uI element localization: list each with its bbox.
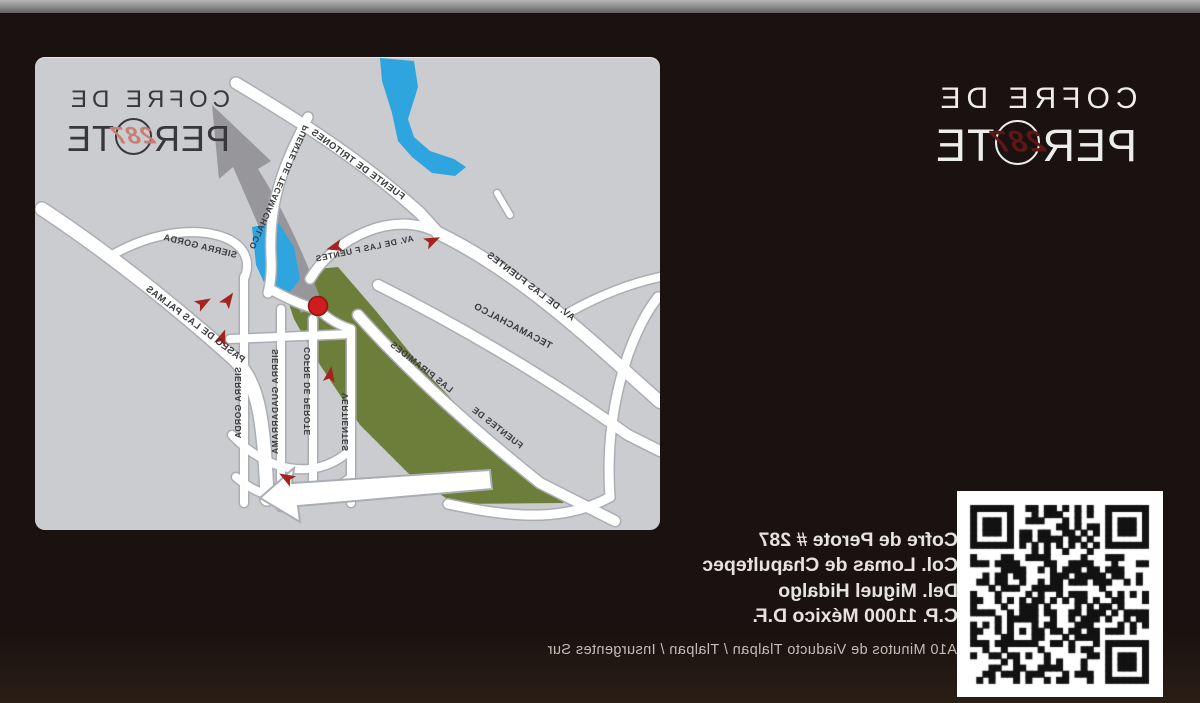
top-bar [0,0,1200,13]
street-label: SIERRA GUADARRAMA [270,349,280,454]
street-label: SIERRA GORDA [233,367,243,439]
brand-logo-line1: COFRE DE [928,84,1144,114]
address-line: Col. Lomas de Chapultepec [702,553,958,578]
map-logo: COFRE DE PER287TE [60,88,236,157]
address-line: Del. Miguel Hidalgo [702,579,958,604]
logo-o-ring: 287 [115,118,152,155]
street-label: FUENTE DE TRITONES [309,127,407,203]
logo-number: 287 [109,124,157,148]
address-block: Cofre de Perote # 287 Col. Lomas de Chap… [702,528,958,630]
map-panel: PASEO DE LAS PALMASSIERRA GORDAPUENTE DE… [35,57,660,530]
street-label: VERTIENTES [340,393,350,451]
street-label: COFRE DE PEROTE [302,347,312,436]
lake-shape [380,58,466,176]
mirrored-content: PASEO DE LAS PALMASSIERRA GORDAPUENTE DE… [0,0,1200,703]
route-arrow-icon [194,293,214,311]
brand-logo: COFRE DE PER287TE [928,84,1144,168]
map-logo-line1: COFRE DE [60,88,236,112]
logo-number: 287 [988,127,1047,157]
route-arrow-icon [219,289,238,309]
map-logo-line2: PER287TE [60,118,236,157]
flyer-image: PASEO DE LAS PALMASSIERRA GORDAPUENTE DE… [0,0,1200,703]
address-line: Cofre de Perote # 287 [702,528,958,553]
logo-o-ring: 287 [996,120,1041,165]
distance-note: A10 Minutos de Viaducto Tlalpan / Tlalpa… [547,642,957,658]
address-line: C.P. 11000 México D.F. [702,604,958,629]
location-marker [309,297,328,316]
brand-logo-line2: PER287TE [928,120,1144,168]
road [230,334,351,339]
qr-code [957,491,1163,697]
